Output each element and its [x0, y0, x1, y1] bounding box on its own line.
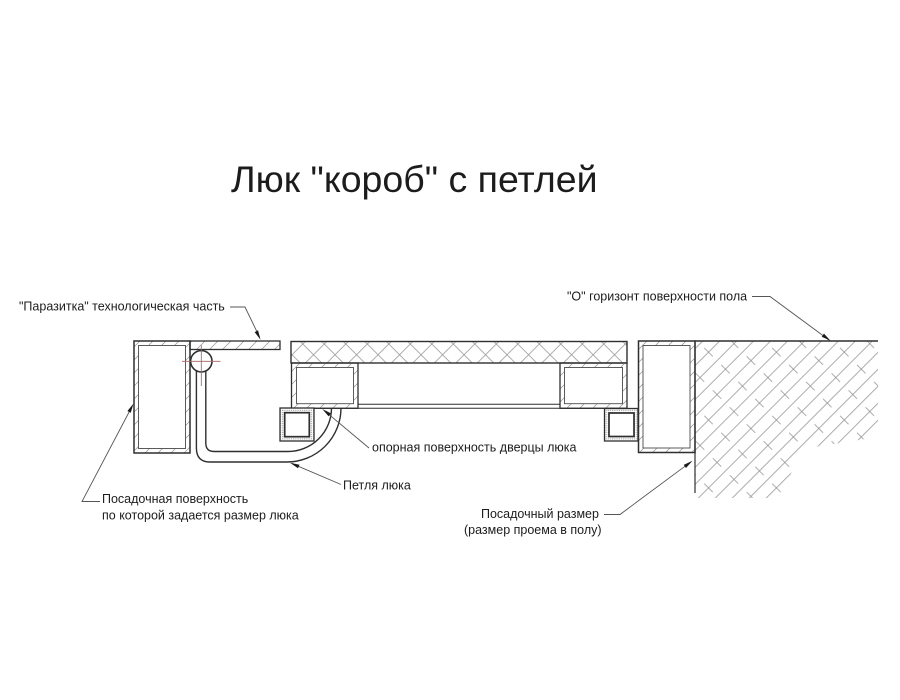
- svg-text:по которой задается размер люк: по которой задается размер люка: [102, 509, 299, 523]
- svg-text:"Паразитка" технологическая ча: "Паразитка" технологическая часть: [19, 300, 225, 314]
- svg-text:(размер проема в полу): (размер проема в полу): [464, 523, 602, 537]
- svg-text:Посадочная поверхность: Посадочная поверхность: [102, 492, 248, 506]
- svg-text:Посадочный размер: Посадочный размер: [481, 507, 599, 521]
- svg-text:опорная поверхность дверцы люк: опорная поверхность дверцы люка: [372, 441, 576, 455]
- svg-text:"О" горизонт поверхности пола: "О" горизонт поверхности пола: [567, 290, 747, 304]
- svg-text:Петля люка: Петля люка: [343, 479, 411, 493]
- svg-text:Люк "короб" с петлей: Люк "короб" с петлей: [231, 158, 598, 200]
